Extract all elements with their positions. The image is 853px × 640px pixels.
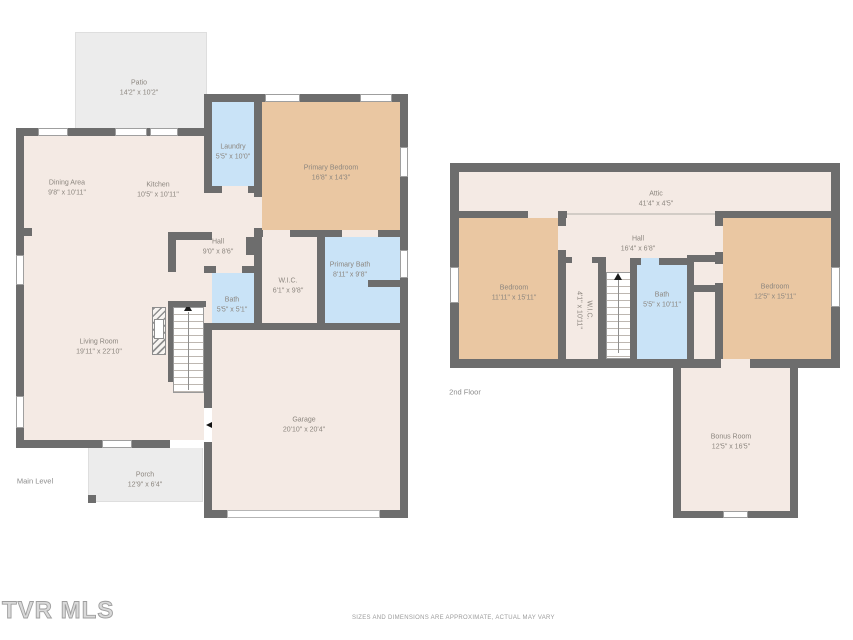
stairs-direction-line (188, 312, 189, 390)
room-label-wic-main: W.I.C. 6'1" x 9'8" (273, 277, 304, 296)
disclaimer-text: SIZES AND DIMENSIONS ARE APPROXIMATE, AC… (352, 615, 555, 621)
room-label-attic: Attic 41'4" x 4'5" (639, 190, 674, 209)
second-floor-label: 2nd Floor (449, 388, 481, 397)
mls-watermark-logo: TVR MLS (2, 597, 114, 625)
stairs-rail-panel (154, 319, 164, 339)
room-label-porch: Porch 12'9" x 6'4" (128, 471, 163, 490)
room-label-kitchen: Kitchen 10'5" x 10'11" (137, 181, 179, 200)
room-label-primary-bedroom: Primary Bedroom 16'8" x 14'3" (304, 164, 358, 183)
floorplan-page: { "page": { "watermark": "TVR MLS", "dis… (0, 0, 853, 640)
stairs-direction-line-2 (618, 278, 619, 353)
garage-door-arrow-icon (206, 422, 212, 428)
floor-main-body (16, 128, 212, 448)
room-label-hall-main: Hall 9'0" x 8'6" (203, 238, 234, 257)
room-label-patio: Patio 14'2" x 10'2" (120, 79, 158, 98)
room-label-dining-area: Dining Area 9'8" x 10'11" (48, 179, 86, 198)
main-level-label: Main Level (17, 477, 53, 486)
room-label-bedroom-right: Bedroom 12'5" x 15'11" (754, 283, 796, 302)
room-label-garage: Garage 20'10" x 20'4" (283, 416, 325, 435)
attic-boundary-line (567, 213, 715, 215)
stairs-up-arrow-icon-2 (614, 273, 622, 280)
room-label-wic-second: W.I.C. 4'1" x 10'11" (575, 291, 594, 329)
room-label-primary-bath: Primary Bath 8'11" x 9'8" (330, 261, 370, 280)
room-label-bath-second: Bath 5'5" x 10'11" (643, 291, 681, 310)
room-label-bedroom-left: Bedroom 11'11" x 15'11" (492, 284, 537, 303)
room-label-bonus-room: Bonus Room 12'5" x 16'5" (711, 433, 751, 452)
room-label-laundry: Laundry 5'5" x 10'0" (216, 143, 251, 162)
room-label-living-room: Living Room 19'11" x 22'10" (76, 338, 122, 357)
room-label-hall-second: Hall 16'4" x 6'8" (621, 235, 656, 254)
room-label-bath-main: Bath 5'5" x 5'1" (217, 296, 248, 315)
